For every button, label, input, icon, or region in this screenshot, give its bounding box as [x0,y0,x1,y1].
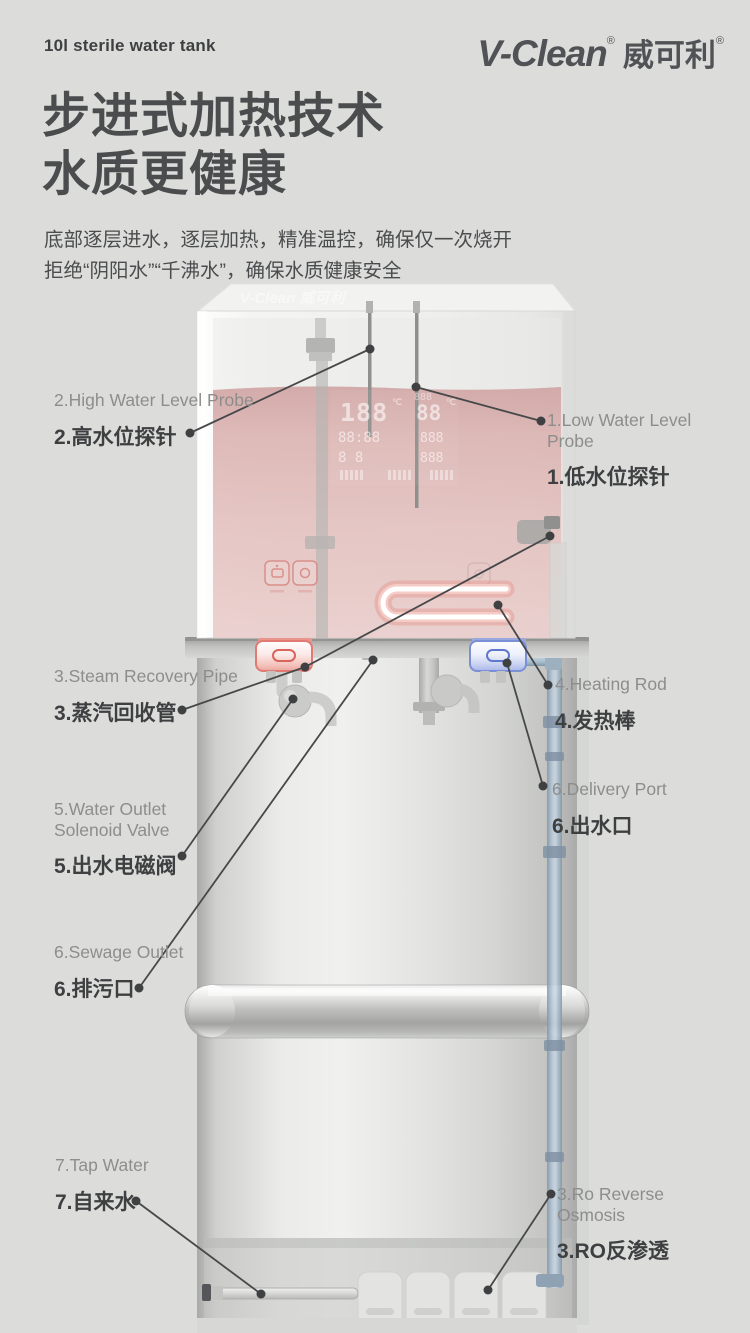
svg-text:888: 888 [420,431,443,446]
label-zh: 7.自来水 [55,1186,149,1216]
page-root: 10l sterile water tank V-Clean®威可利® 步进式加… [0,0,750,1333]
label-en: 3.Steam Recovery Pipe [54,666,238,687]
label-en: 6.Sewage Outlet [54,942,183,963]
label-zh: 3.RO反渗透 [557,1235,675,1265]
tank-watermark: V-Clean 威可利 [240,290,347,307]
label-en: 3.Ro Reverse Osmosis [557,1184,675,1225]
svg-text:888: 888 [420,451,443,466]
label-steam-recovery-pipe: 3.Steam Recovery Pipe 3.蒸汽回收管 [54,666,238,727]
svg-text:88:88: 88:88 [338,430,380,446]
svg-text:8 8: 8 8 [338,450,363,466]
label-en: 7.Tap Water [55,1155,149,1176]
label-ro-reverse-osmosis: 3.Ro Reverse Osmosis 3.RO反渗透 [557,1184,675,1265]
label-delivery-port: 6.Delivery Port 6.出水口 [552,779,667,840]
label-zh: 5.出水电磁阀 [54,850,192,880]
svg-text:88: 88 [416,401,441,425]
label-heating-rod: 4.Heating Rod 4.发热棒 [555,674,667,735]
label-sewage-outlet: 6.Sewage Outlet 6.排污口 [54,942,183,1003]
label-zh: 6.出水口 [552,810,667,840]
label-tap-water: 7.Tap Water 7.自来水 [55,1155,149,1216]
label-zh: 3.蒸汽回收管 [54,697,238,727]
svg-text:℃: ℃ [392,398,402,408]
bottom-sill [197,1318,577,1333]
label-en: 5.Water Outlet Solenoid Valve [54,799,192,840]
label-zh: 1.低水位探针 [547,461,699,491]
svg-text:188: 188 [340,398,388,427]
label-en: 2.High Water Level Probe [54,390,254,411]
label-water-outlet-solenoid-valve: 5.Water Outlet Solenoid Valve 5.出水电磁阀 [54,799,192,880]
label-high-water-level-probe: 2.High Water Level Probe 2.高水位探针 [54,390,254,451]
label-en: 4.Heating Rod [555,674,667,695]
label-zh: 2.高水位探针 [54,421,254,451]
label-en: 1.Low Water Level Probe [547,410,699,451]
chrome-band [185,985,589,1038]
label-zh: 4.发热棒 [555,705,667,735]
display-panel: 888 188 ℃ 88 ℃ 88:88 888 8 8 888 [330,390,458,485]
label-low-water-level-probe: 1.Low Water Level Probe 1.低水位探针 [547,410,699,491]
label-zh: 6.排污口 [54,973,183,1003]
label-en: 6.Delivery Port [552,779,667,800]
svg-text:℃: ℃ [446,398,456,408]
